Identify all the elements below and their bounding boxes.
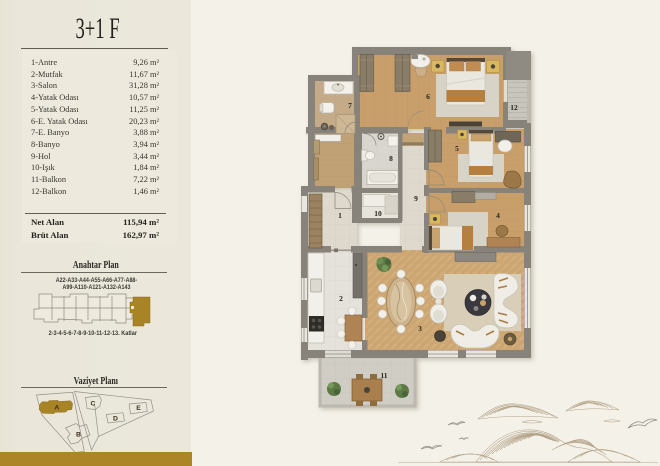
- svg-text:10: 10: [374, 209, 382, 218]
- svg-text:2: 2: [339, 294, 343, 303]
- svg-text:8: 8: [389, 154, 393, 163]
- svg-text:A: A: [54, 404, 59, 411]
- svg-text:7: 7: [348, 101, 352, 110]
- svg-text:4: 4: [496, 211, 500, 220]
- svg-text:3: 3: [418, 324, 422, 333]
- svg-text:11: 11: [380, 371, 387, 380]
- svg-text:5: 5: [455, 144, 459, 153]
- svg-text:B: B: [76, 432, 81, 439]
- svg-text:9: 9: [414, 194, 418, 203]
- svg-text:1: 1: [338, 211, 342, 220]
- svg-text:D: D: [113, 415, 118, 422]
- svg-text:C: C: [91, 401, 96, 408]
- svg-text:E: E: [136, 405, 141, 412]
- svg-text:6: 6: [426, 92, 430, 101]
- svg-text:12: 12: [510, 103, 518, 112]
